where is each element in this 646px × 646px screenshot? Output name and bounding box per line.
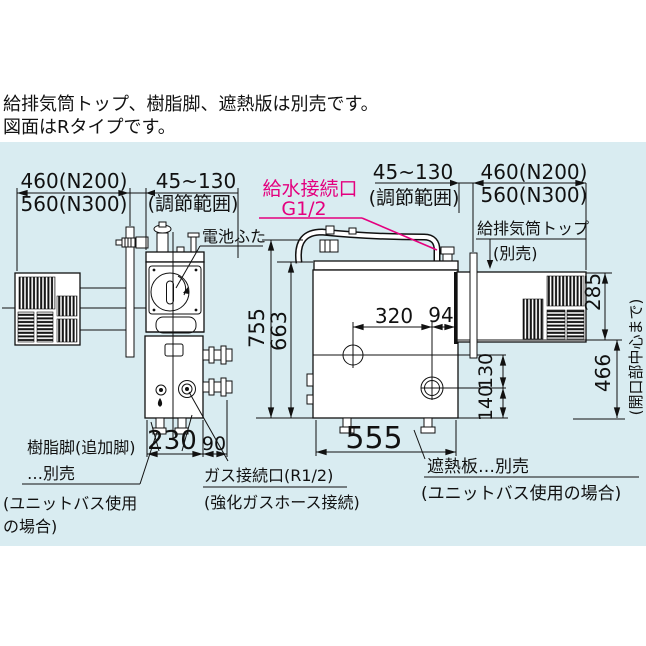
installation-diagram: 460(N200) 560(N300) 45~130 (調節範囲) 電池ふた: [0, 0, 646, 646]
dim-94: 94: [428, 303, 453, 327]
dim-320: 320: [375, 304, 413, 328]
height-dimensions: 755 663: [245, 240, 313, 418]
page: 給排気筒トップ、樹脂脚、遮熱版は別売です。 図面はRタイプです。: [0, 0, 646, 646]
note-gas-2: (強化ガスホース接続): [204, 493, 360, 512]
label-flue-top: 給排気筒トップ: [477, 219, 589, 238]
dim-285: 285: [581, 273, 605, 311]
dim-130: 130: [475, 353, 497, 389]
dim-adjust-right: 45~130: [373, 160, 453, 184]
note-gas-1: ガス接続口(R1/2): [204, 466, 333, 485]
dim-755: 755: [245, 308, 269, 348]
dim-466-sub: (開口部中心まで): [627, 299, 645, 416]
front-view-drawing: 給水接続口 G1/2 45~130 (調節範囲) 460(N200) 560(N…: [245, 160, 645, 504]
dim-depth-n300-left: 560(N300): [21, 192, 128, 216]
dim-663: 663: [267, 311, 291, 351]
note-resin-leg-4: の場合): [3, 517, 57, 536]
flue-top-left: [15, 273, 128, 345]
water-inlet-hose: [298, 226, 454, 263]
resin-leg-callout: 樹脂脚(追加脚) …別売 (ユニットバス使用 の場合): [3, 432, 157, 536]
dim-adjust-sub-right: (調節範囲): [369, 187, 460, 209]
label-water-inlet-size: G1/2: [281, 198, 326, 220]
dim-adjust-sub-left: (調節範囲): [148, 193, 239, 215]
shield-plate-callout: 遮熱板…別売 (ユニットバス使用の場合): [414, 430, 639, 504]
note-resin-leg-2: …別売: [27, 464, 75, 483]
dim-adjust-left: 45~130: [156, 169, 236, 193]
note-resin-leg-3: (ユニットバス使用: [3, 494, 137, 513]
width-dimension-bottom: 555: [316, 420, 456, 456]
dim-140: 140: [475, 385, 497, 421]
note-shield-2: (ユニットバス使用の場合): [421, 483, 621, 504]
dim-depth-n200-right: 460(N200): [481, 160, 588, 184]
flue-top-callout: 給排気筒トップ (別売): [476, 219, 589, 269]
dim-depth-n200-left: 460(N200): [21, 169, 128, 193]
note-resin-leg-1: 樹脂脚(追加脚): [27, 438, 136, 457]
side-unit-body: [145, 232, 204, 440]
dim-depth-n300-right: 560(N300): [481, 183, 588, 207]
side-view-drawing: 460(N200) 560(N300) 45~130 (調節範囲) 電池ふた: [2, 169, 360, 536]
label-flue-top-sub: (別売): [493, 244, 538, 263]
dim-555: 555: [345, 421, 402, 456]
note-shield-1: 遮熱板…別売: [427, 457, 529, 477]
label-battery-cover: 電池ふた: [202, 227, 266, 246]
label-water-inlet: 給水接続口: [262, 178, 357, 200]
handle-recess: [156, 317, 196, 333]
front-unit-body: [307, 261, 458, 433]
gas-height-dimensions: 130 140: [458, 353, 508, 421]
flue-height-dimensions: 285 466 (開口部中心まで): [573, 273, 645, 419]
wall-plate-right: [470, 253, 477, 358]
front-top-dimensions: 45~130 (調節範囲) 460(N200) 560(N300): [369, 160, 588, 270]
dim-466: 466: [591, 354, 615, 392]
dim-230: 230: [147, 426, 197, 456]
side-pipe-fittings: [203, 346, 232, 396]
